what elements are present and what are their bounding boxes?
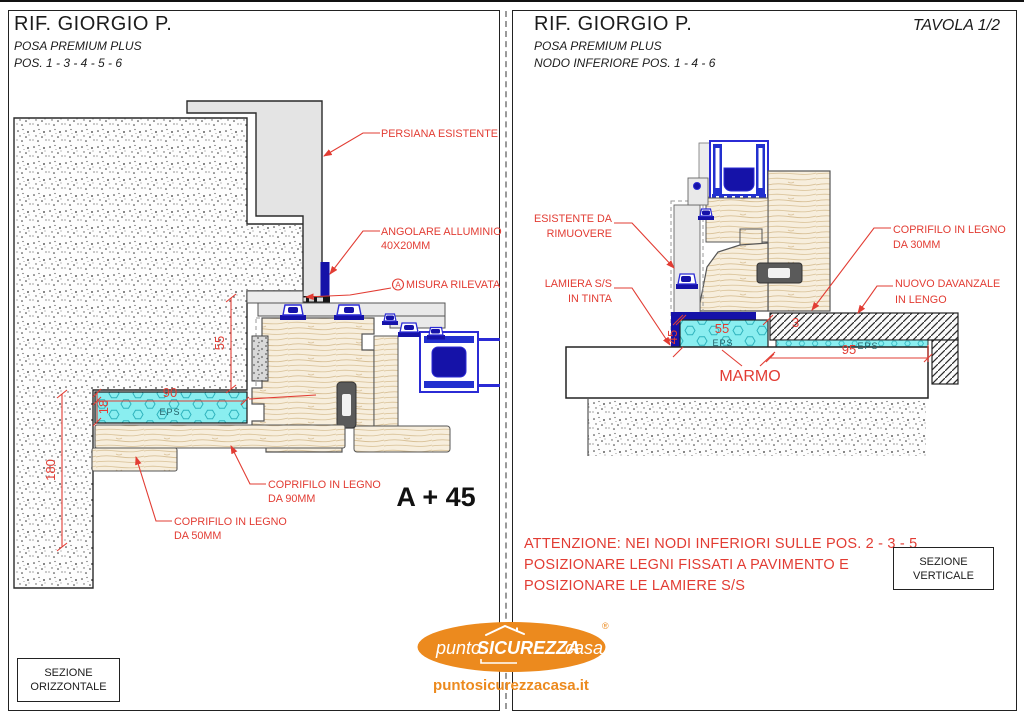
svg-text:55: 55 bbox=[715, 321, 729, 336]
attention-note: ATTENZIONE: NEI NODI INFERIORI SULLE POS… bbox=[524, 534, 917, 597]
coprifilo90-label-2: DA 90MM bbox=[268, 493, 315, 505]
coprifilo90-label-1: COPRIFILO IN LEGNO bbox=[268, 479, 381, 491]
eps1-label: EPS bbox=[712, 338, 733, 348]
compression-seal bbox=[252, 336, 268, 381]
lamiera-label-1: LAMIERA S/S bbox=[545, 278, 612, 290]
website-link[interactable]: puntosicurezzacasa.it bbox=[433, 677, 589, 694]
persiana-label: PERSIANA ESISTENTE bbox=[381, 128, 498, 140]
coprifilo30-label-1: COPRIFILO IN LEGNO bbox=[893, 224, 1006, 236]
glazing-unit-vertical bbox=[710, 141, 768, 201]
svg-text:180: 180 bbox=[43, 459, 58, 481]
eps-label-left: EPS bbox=[159, 407, 180, 417]
section-h-line1: SEZIONE bbox=[44, 666, 92, 680]
registered-mark: ® bbox=[602, 621, 609, 631]
esistente-label-1: ESISTENTE DA bbox=[534, 213, 613, 225]
wood-frame-block bbox=[768, 171, 830, 311]
section-v-line2: VERTICALE bbox=[913, 569, 974, 583]
attention-line-2: POSIZIONARE LEGNI FISSATI A PAVIMENTO E bbox=[524, 555, 917, 576]
angolare-label-2: 40X20MM bbox=[381, 240, 430, 252]
angolare-label-1: ANGOLARE ALLUMINIO bbox=[381, 226, 502, 238]
svg-text:90: 90 bbox=[163, 385, 177, 400]
svg-text:95: 95 bbox=[842, 342, 856, 357]
coprifilo30-label-2: DA 30MM bbox=[893, 239, 940, 251]
measure-note: A + 45 bbox=[396, 482, 475, 512]
dim-3: 3 bbox=[792, 315, 799, 330]
windowsill-nose bbox=[932, 340, 958, 384]
marmo-label: MARMO bbox=[719, 368, 780, 385]
concrete-base bbox=[588, 399, 926, 456]
brand-logo: punto SICUREZZA casa ® puntosicurezzacas… bbox=[418, 621, 610, 694]
wood-frame-section bbox=[374, 336, 398, 430]
left-drawing-horizontal-section bbox=[14, 101, 500, 588]
attention-line-1: ATTENZIONE: NEI NODI INFERIORI SULLE POS… bbox=[524, 534, 917, 555]
handle-hardware bbox=[337, 382, 356, 428]
gasket-hardware bbox=[757, 263, 802, 283]
measure-marker-letter: A bbox=[395, 281, 401, 290]
wood-bottom-board bbox=[354, 426, 450, 452]
drawing-sheet: RIF. GIORGIO P. POSA PREMIUM PLUS POS. 1… bbox=[0, 0, 1024, 724]
glazing-unit-horizontal bbox=[420, 332, 500, 392]
coprifilo50-label-2: DA 50MM bbox=[174, 530, 221, 542]
attention-line-3: POSIZIONARE LE LAMIERE S/S bbox=[524, 576, 917, 597]
eps2-label: EPS bbox=[857, 341, 878, 351]
esistente-label-2: RIMUOVERE bbox=[547, 228, 612, 240]
lamiera-label-2: IN TINTA bbox=[568, 293, 613, 305]
drawing-canvas: PERSIANA ESISTENTE ANGOLARE ALLUMINIO 40… bbox=[0, 0, 1024, 724]
svg-text:55: 55 bbox=[212, 336, 227, 350]
coprifilo50-label-1: COPRIFILO IN LEGNO bbox=[174, 516, 287, 528]
davanzale-label-2: IN LENGO bbox=[895, 294, 947, 306]
svg-text:18: 18 bbox=[96, 400, 111, 414]
wood-castellation bbox=[740, 229, 762, 245]
logo-part1: punto bbox=[435, 638, 481, 658]
section-v-line1: SEZIONE bbox=[919, 555, 967, 569]
misura-label: MISURA RILEVATA bbox=[406, 279, 501, 291]
coprifilo-90mm-board bbox=[95, 425, 345, 448]
logo-part3: casa bbox=[565, 638, 603, 658]
svg-text:45: 45 bbox=[665, 330, 680, 344]
section-label-horizontal: SEZIONE ORIZZONTALE bbox=[17, 658, 120, 702]
coprifilo-50mm-board bbox=[92, 448, 177, 471]
section-h-line2: ORIZZONTALE bbox=[30, 680, 106, 694]
section-label-vertical: SEZIONE VERTICALE bbox=[893, 547, 994, 590]
davanzale-label-1: NUOVO DAVANZALE bbox=[895, 278, 1000, 290]
